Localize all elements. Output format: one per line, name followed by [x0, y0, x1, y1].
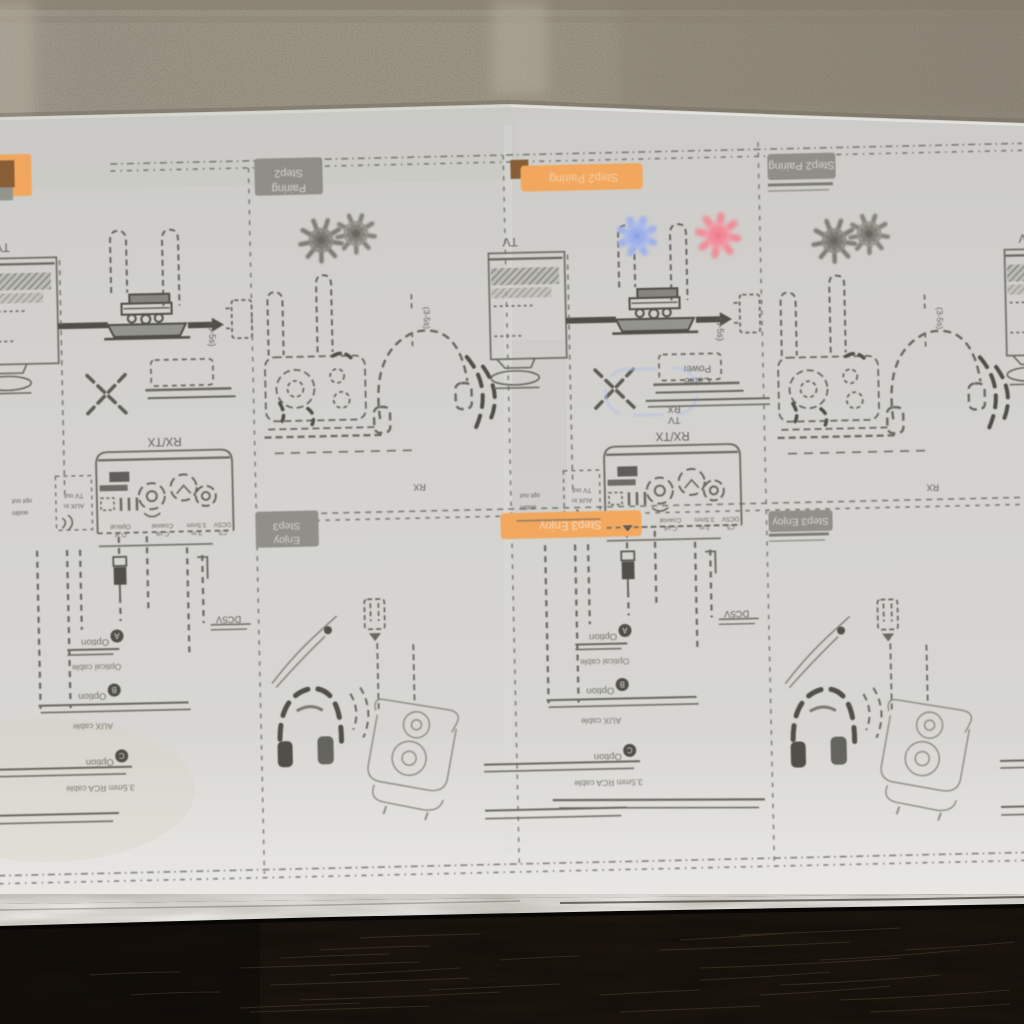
svg-text:Coaxial: Coaxial: [151, 522, 173, 530]
svg-text:3 m: 3 m: [191, 529, 202, 536]
svg-text:C5: C5: [218, 528, 227, 535]
svg-text:Cable: Cable: [684, 374, 711, 386]
svg-text:Option: Option: [86, 756, 114, 768]
svg-text:RX/TX: RX/TX: [147, 434, 181, 447]
svg-text:TV: TV: [0, 240, 10, 254]
svg-text:TV: TV: [667, 414, 680, 425]
svg-text:Option: Option: [78, 690, 106, 702]
svg-text:AUX cable: AUX cable: [73, 721, 114, 732]
svg-text:opt out: opt out: [12, 497, 32, 504]
svg-text:(3-5s): (3-5s): [422, 307, 433, 330]
svg-text:RX: RX: [413, 482, 426, 492]
svg-text:Step2 Pairing: Step2 Pairing: [549, 171, 618, 185]
svg-text:AUX in: AUX in: [63, 502, 84, 509]
svg-text:RX: RX: [667, 403, 681, 414]
svg-text:C: C: [118, 751, 124, 760]
svg-text:B: B: [111, 685, 117, 694]
svg-text:3.5mm: 3.5mm: [186, 521, 206, 528]
svg-text:Pairing: Pairing: [272, 182, 307, 195]
svg-text:TV out: TV out: [64, 492, 83, 499]
svg-text:Step3 Enjoy: Step3 Enjoy: [771, 515, 829, 528]
svg-text:(3-5s): (3-5s): [207, 323, 218, 347]
svg-text:Step3: Step3: [273, 520, 301, 533]
svg-text:Option: Option: [81, 636, 109, 648]
svg-text:Enjoy: Enjoy: [273, 534, 300, 547]
svg-text:3.5mm RCA cable: 3.5mm RCA cable: [66, 783, 135, 795]
svg-text:Optical cable: Optical cable: [72, 662, 122, 673]
svg-text:C ial: C ial: [156, 530, 170, 537]
svg-text:DC5V: DC5V: [213, 520, 231, 527]
svg-text:Step2 Pairing: Step2 Pairing: [768, 159, 834, 172]
svg-text:DC5V: DC5V: [215, 613, 241, 625]
svg-text:A: A: [114, 631, 120, 640]
svg-text:O al: O al: [114, 531, 127, 538]
svg-text:audio: audio: [12, 509, 28, 516]
svg-text:Optical: Optical: [110, 523, 131, 530]
svg-text:Step2: Step2: [274, 167, 303, 180]
